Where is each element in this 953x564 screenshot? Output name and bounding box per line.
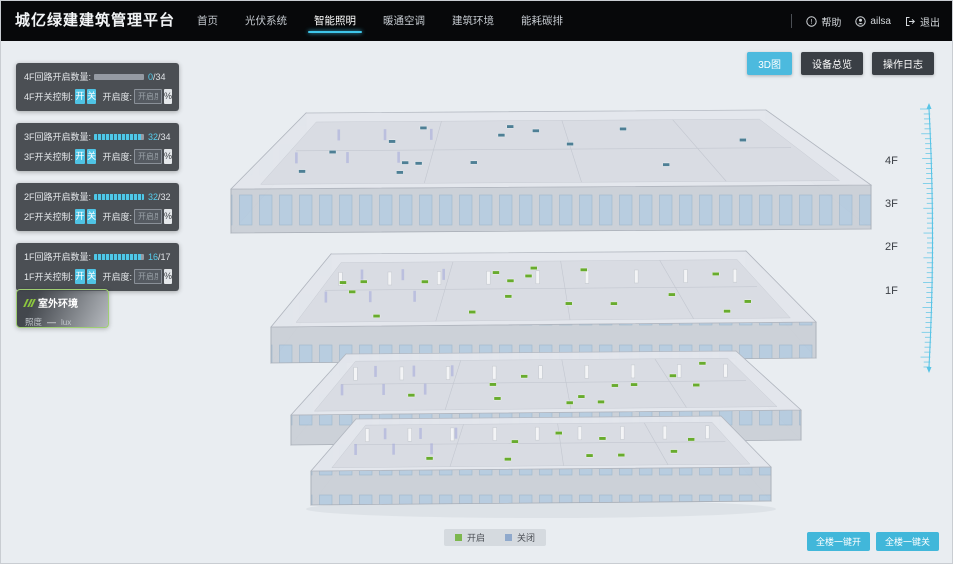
floor-label-2f: 2F [885, 241, 898, 253]
switch-off-button-3f[interactable]: 关 [87, 149, 97, 164]
circuit-count-label: 1F回路开启数量: [24, 250, 91, 263]
switch-on-button-4f[interactable]: 开 [75, 89, 85, 104]
switch-off-button-4f[interactable]: 关 [87, 89, 97, 104]
dim-level-input-4f[interactable] [134, 89, 162, 104]
outdoor-environment-panel: 室外环境 照度 — lux [16, 289, 109, 328]
all-floors-on-button[interactable]: 全楼一键开 [807, 532, 870, 551]
logout-icon [905, 16, 916, 27]
floor-panel-1f: 1F回路开启数量: 16/17 1F开关控制: 开 关 开启度: % [16, 243, 179, 291]
logout-link[interactable]: 退出 [905, 14, 940, 29]
illuminance-label: 照度 [25, 316, 42, 328]
nav-item-hvac[interactable]: 暖通空调 [383, 1, 425, 41]
illuminance-unit: lux [61, 318, 71, 327]
brand-title: 城亿绿建建筑管理平台 [15, 1, 175, 41]
dim-level-label: 开启度: [102, 270, 132, 283]
circuit-count-label: 4F回路开启数量: [24, 70, 91, 83]
user-menu[interactable]: ailsa [855, 16, 891, 27]
outdoor-panel-title: 室外环境 [38, 295, 78, 310]
switch-on-button-2f[interactable]: 开 [75, 209, 85, 224]
floor-label-4f: 4F [885, 155, 898, 167]
dim-level-input-3f[interactable] [134, 149, 162, 164]
circuit-progress-bar [94, 134, 144, 140]
circuit-count-label: 2F回路开启数量: [24, 190, 91, 203]
app-root: 城亿绿建建筑管理平台 首页 光伏系统 智能照明 暖通空调 建筑环境 能耗碳排 !… [0, 0, 953, 564]
circuit-count-total: /17 [158, 252, 171, 262]
building-3d-view[interactable] [196, 89, 896, 521]
circuit-count-label: 3F回路开启数量: [24, 130, 91, 143]
circuit-count-total: /34 [158, 132, 171, 142]
floor-panel-2f: 2F回路开启数量: 32/32 2F开关控制: 开 关 开启度: % [16, 183, 179, 231]
switch-control-label: 4F开关控制: [24, 90, 73, 103]
help-icon: ! [806, 16, 817, 27]
vertical-scale-ruler [903, 101, 947, 384]
dim-level-input-2f[interactable] [134, 209, 162, 224]
dim-level-label: 开启度: [102, 150, 132, 163]
bulk-actions: 全楼一键开 全楼一键关 [807, 532, 939, 551]
floor-panel-4f: 4F回路开启数量: 0/34 4F开关控制: 开 关 开启度: % [16, 63, 179, 111]
dim-percent-button-4f[interactable]: % [164, 89, 172, 104]
floor-label-1f: 1F [885, 285, 898, 297]
nav-item-pv-system[interactable]: 光伏系统 [245, 1, 287, 41]
view-mode-toolbar: 3D图 设备总览 操作日志 [747, 52, 934, 75]
illuminance-value: — [47, 317, 56, 327]
dim-percent-button-1f[interactable]: % [164, 269, 172, 284]
switch-off-button-1f[interactable]: 关 [87, 269, 97, 284]
floor-panel-3f: 3F回路开启数量: 32/34 3F开关控制: 开 关 开启度: % [16, 123, 179, 171]
circuit-count-value: 16 [148, 252, 158, 262]
device-overview-button[interactable]: 设备总览 [801, 52, 863, 75]
all-floors-off-button[interactable]: 全楼一键关 [876, 532, 939, 551]
username: ailsa [870, 16, 891, 27]
switch-control-label: 2F开关控制: [24, 210, 73, 223]
legend-item-off: 关闭 [505, 531, 535, 544]
circuit-count-total: /34 [153, 72, 166, 82]
view-3d-button[interactable]: 3D图 [747, 52, 792, 75]
dim-level-label: 开启度: [102, 210, 132, 223]
building-floor-4F [231, 110, 871, 233]
switch-on-button-3f[interactable]: 开 [75, 149, 85, 164]
nav-item-smart-lighting[interactable]: 智能照明 [314, 1, 356, 41]
circuit-progress-bar [94, 74, 144, 80]
switch-control-label: 3F开关控制: [24, 150, 73, 163]
circuit-progress-bar [94, 194, 144, 200]
help-link[interactable]: ! 帮助 [806, 14, 841, 29]
svg-text:!: ! [811, 19, 813, 26]
floor-label-3f: 3F [885, 198, 898, 210]
main-nav: 首页 光伏系统 智能照明 暖通空调 建筑环境 能耗碳排 [197, 1, 563, 41]
status-legend: 开启 关闭 [444, 529, 546, 546]
nav-item-building-env[interactable]: 建筑环境 [452, 1, 494, 41]
legend-on-swatch [455, 534, 462, 541]
switch-control-label: 1F开关控制: [24, 270, 73, 283]
switch-off-button-2f[interactable]: 关 [87, 209, 97, 224]
dim-percent-button-2f[interactable]: % [164, 209, 172, 224]
circuit-count-value: 32 [148, 192, 158, 202]
header-divider [791, 14, 792, 28]
circuit-count-value: 32 [148, 132, 158, 142]
circuit-count-total: /32 [158, 192, 171, 202]
dim-level-input-1f[interactable] [134, 269, 162, 284]
circuit-progress-bar [94, 254, 144, 260]
legend-item-on: 开启 [455, 531, 485, 544]
user-avatar-icon [855, 16, 866, 27]
switch-on-button-1f[interactable]: 开 [75, 269, 85, 284]
slashes-icon [25, 299, 34, 307]
floor-panels-column: 4F回路开启数量: 0/34 4F开关控制: 开 关 开启度: % 3F回路开启… [16, 63, 179, 303]
operation-log-button[interactable]: 操作日志 [872, 52, 934, 75]
legend-off-swatch [505, 534, 512, 541]
dim-percent-button-3f[interactable]: % [164, 149, 172, 164]
nav-item-energy-carbon[interactable]: 能耗碳排 [521, 1, 563, 41]
building-floor-3F [271, 251, 816, 363]
dim-level-label: 开启度: [102, 90, 132, 103]
header: 城亿绿建建筑管理平台 首页 光伏系统 智能照明 暖通空调 建筑环境 能耗碳排 !… [1, 1, 952, 41]
header-right: ! 帮助 ailsa 退出 [791, 1, 940, 41]
nav-item-home[interactable]: 首页 [197, 1, 218, 41]
building-floor-1F [311, 416, 771, 505]
